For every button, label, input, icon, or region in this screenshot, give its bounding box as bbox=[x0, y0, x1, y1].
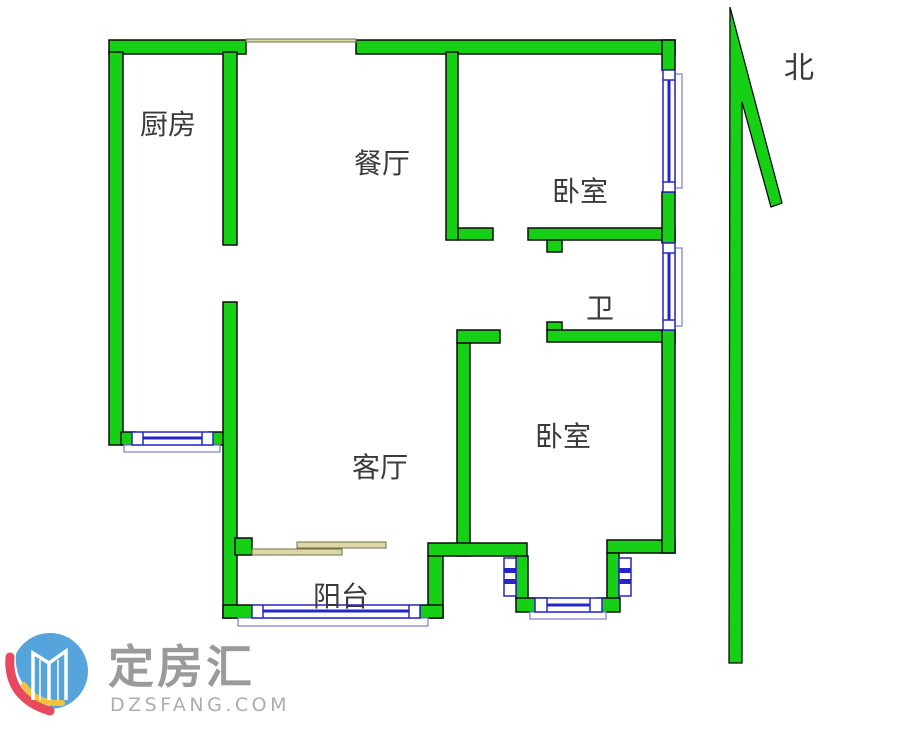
label-living: 客厅 bbox=[352, 451, 408, 484]
window-bedroom-top bbox=[663, 70, 682, 192]
label-bathroom: 卫 bbox=[586, 292, 614, 325]
wall-bathroom-bottom bbox=[547, 330, 675, 342]
wall-bay-left bbox=[516, 556, 528, 600]
wall-top-right bbox=[356, 40, 675, 54]
wall-slider-block-left bbox=[235, 538, 252, 555]
window-bay-left bbox=[504, 558, 516, 596]
wall-kitchen-right-upper bbox=[223, 52, 237, 245]
wall-bay-right bbox=[607, 553, 619, 598]
label-bedroom-bottom: 卧室 bbox=[535, 420, 591, 453]
wall-right-seg3 bbox=[662, 330, 675, 553]
wall-bathroom-door-tab-lower bbox=[547, 322, 562, 330]
window-bathroom bbox=[663, 243, 682, 330]
compass: 北 bbox=[729, 7, 814, 663]
watermark: 定房汇 DZSFANG.COM bbox=[10, 633, 290, 716]
wall-living-left bbox=[223, 302, 237, 618]
wall-bathroom-door-tab-upper bbox=[547, 240, 562, 252]
floorplan-drawing: 北 厨房 餐厅 卧室 卫 客厅 卧室 阳台 定房汇 DZ bbox=[0, 0, 900, 729]
balcony-slider-panel-1 bbox=[297, 542, 386, 548]
window-bay-right bbox=[619, 558, 631, 596]
label-balcony: 阳台 bbox=[313, 580, 369, 613]
wall-right-seg2 bbox=[662, 192, 675, 243]
watermark-domain-text: DZSFANG.COM bbox=[110, 694, 290, 716]
label-dining: 餐厅 bbox=[354, 147, 410, 180]
wall-living-bedroom-divider bbox=[457, 343, 470, 556]
wall-left bbox=[109, 52, 123, 445]
north-arrow-icon bbox=[729, 7, 782, 663]
watermark-brand-text: 定房汇 bbox=[108, 640, 255, 694]
wall-bedroom-top-bottom bbox=[528, 228, 675, 240]
entry-opening-line bbox=[246, 39, 356, 42]
watermark-logo-icon bbox=[10, 633, 88, 711]
label-kitchen: 厨房 bbox=[140, 108, 196, 141]
room-labels: 厨房 餐厅 卧室 卫 客厅 卧室 阳台 bbox=[140, 108, 614, 613]
window-kitchen bbox=[124, 432, 220, 452]
wall-balcony-corner-right bbox=[420, 605, 443, 618]
wall-bedroom-bottom-top bbox=[457, 330, 500, 343]
balcony-slider-panel-2 bbox=[252, 549, 342, 555]
wall-balcony-corner-left bbox=[223, 605, 252, 618]
wall-dining-divider bbox=[446, 52, 458, 240]
wall-right-seg1 bbox=[662, 40, 675, 70]
wall-living-bottom bbox=[428, 543, 527, 556]
wall-dining-divider-foot bbox=[458, 228, 493, 240]
compass-label: 北 bbox=[784, 51, 814, 86]
label-bedroom-top: 卧室 bbox=[552, 175, 608, 208]
window-bay-bottom bbox=[530, 598, 606, 619]
floorplan-page: 北 厨房 餐厅 卧室 卫 客厅 卧室 阳台 定房汇 DZ bbox=[0, 0, 900, 729]
